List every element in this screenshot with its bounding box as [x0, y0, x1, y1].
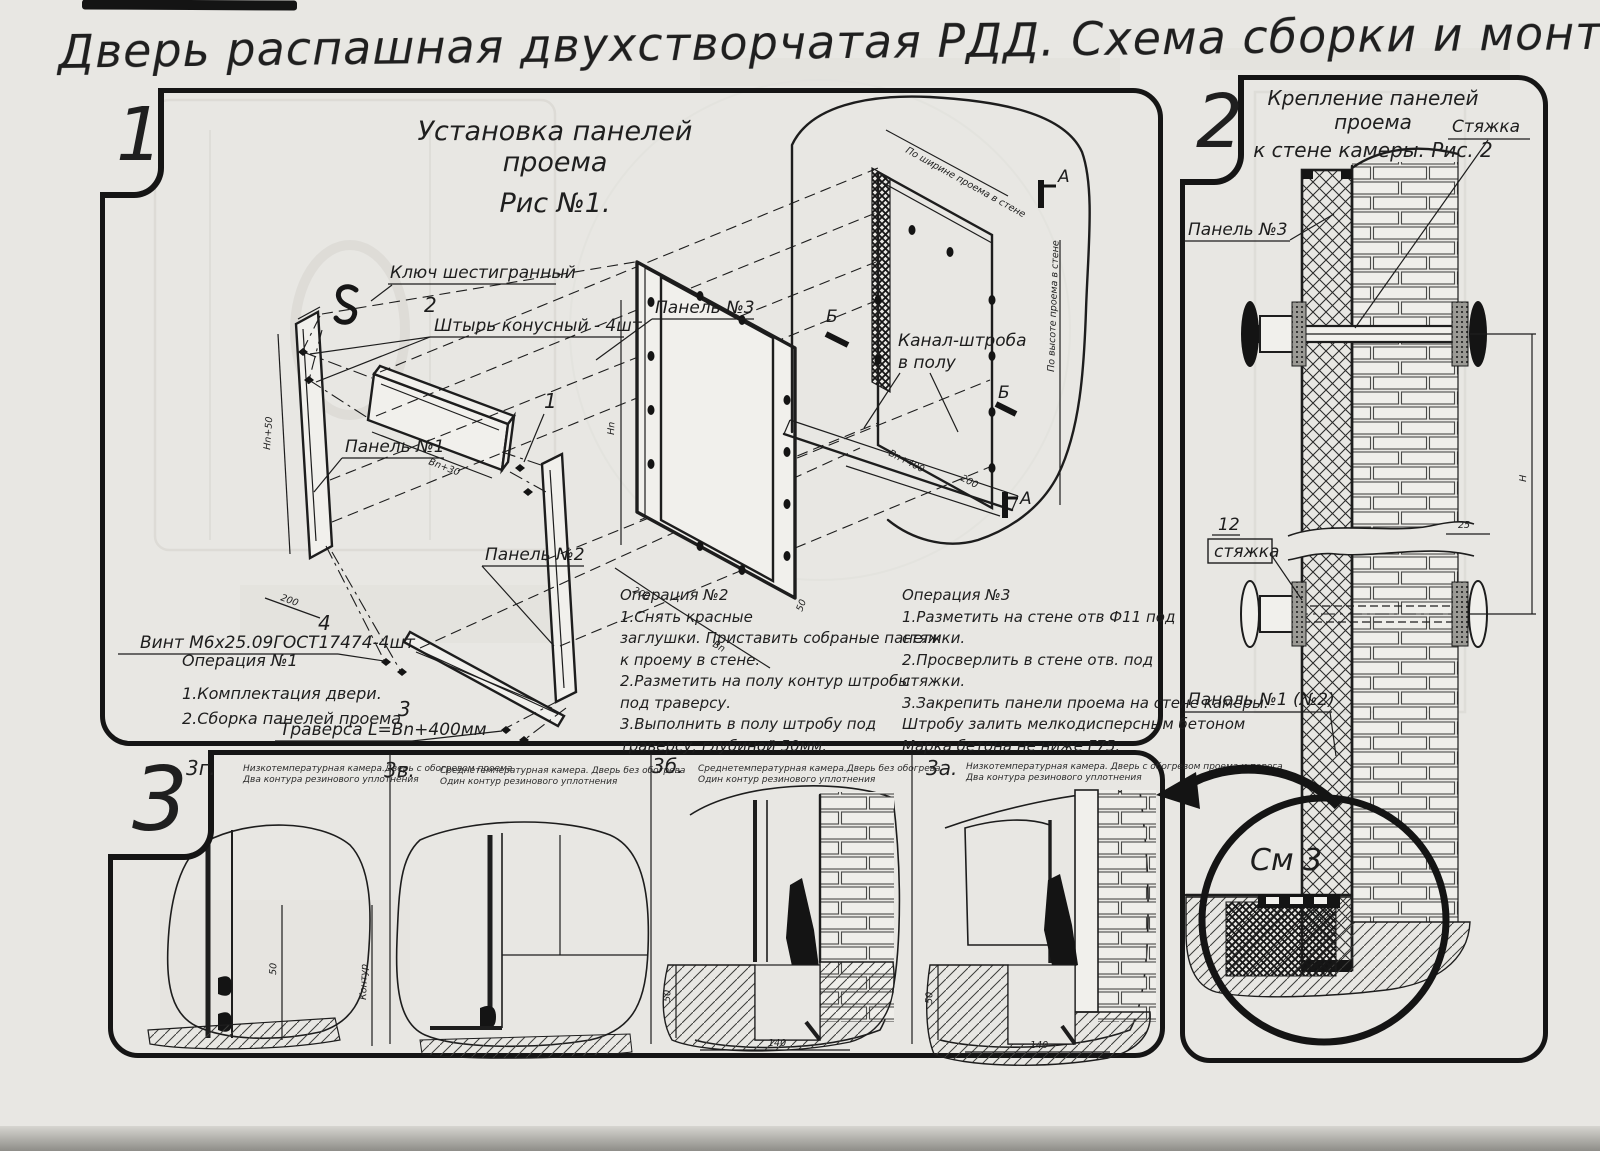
figure-1-heading-line2: Рис №1. — [385, 188, 725, 219]
figure-2-heading-line1: Крепление панелей проема — [1248, 86, 1498, 134]
figure-2-heading-line2: к стене камеры. Рис. 2 — [1248, 138, 1498, 162]
rubber-seal-icon — [218, 976, 232, 996]
dim-hn: Hn — [606, 422, 617, 436]
panel-1-badge: 1 — [116, 98, 163, 172]
figure-2-fixing-drawing: H 25 Стяжка Панель №3 12 стяжка — [1180, 75, 1538, 1058]
marker-b-left: Б — [826, 307, 838, 327]
operation-3-text: Операция №3 1.Разметить на стене отв Ф11… — [902, 585, 1269, 757]
cell-3b-label: 3б. — [652, 754, 683, 778]
label-pin-number: 2 — [424, 293, 437, 317]
section-3a-drawing: 50 140 — [924, 790, 1156, 1065]
section-3v-drawing — [397, 822, 649, 1058]
dim-opening-height: По высоте проема в стене — [1046, 240, 1062, 372]
dim-25: 25 — [1458, 520, 1470, 531]
dim-3b-50: 50 — [662, 990, 673, 1002]
blueprint-page: Дверь распашная двухстворчатая РДД. Схем… — [0, 0, 1600, 1151]
dim-3b-140: 140 — [768, 1038, 786, 1049]
operation-2-text: Операция №2 1.Снять красные заглушки. Пр… — [620, 585, 942, 757]
marker-a-bottom: А — [1019, 489, 1032, 509]
section-3b-drawing: 50 140 — [662, 786, 899, 1051]
dim-opening-width: По ширине проема в стене — [904, 145, 1028, 220]
panel-3-badge: 3 — [132, 756, 188, 844]
label-panel-1: Панель №1 — [345, 437, 445, 457]
label-tie-item-number: 12 — [1218, 515, 1240, 535]
cell-3g-label: 3г. — [186, 756, 216, 780]
label-conical-pin: Штырь конусный - 4шт — [434, 316, 643, 336]
cell-3v-label: 3в. — [384, 758, 415, 782]
dim-h: H — [1518, 475, 1529, 483]
dim-3a-140: 140 — [1030, 1040, 1048, 1051]
label-floor-channel-line1: Канал-штроба — [898, 331, 1027, 351]
scan-shadow-bottom — [0, 1126, 1600, 1151]
figure-3-sections-drawing: 50 Контур 50 — [108, 750, 1155, 1058]
cell-3a-caption: Низкотемпературная камера. Дверь с обогр… — [966, 762, 1283, 784]
label-floor-channel-line2: в полу — [898, 353, 957, 373]
dim-200c: 200 — [959, 473, 980, 491]
figure-1-heading-line1: Установка панелей проема — [385, 116, 725, 178]
marker-a-top: А — [1057, 167, 1070, 187]
insulated-panel-strip — [1302, 170, 1352, 972]
cell-3v-caption: Среднетемпературная камера. Дверь без об… — [440, 766, 685, 788]
figure-1-heading: Установка панелей проема Рис №1. — [385, 116, 725, 219]
dim-3a-50: 50 — [924, 992, 935, 1004]
label-item-1: 1 — [544, 389, 557, 413]
hex-key-icon — [336, 287, 356, 323]
label-panel-3: Панель №3 — [655, 298, 755, 318]
dim-hn50: Hn+50 — [262, 416, 275, 450]
cell-3a-label: 3а. — [926, 756, 957, 780]
figure-2-dimensions: H 25 — [1446, 334, 1536, 614]
dim-3g-50: 50 — [268, 963, 279, 975]
cell-3b-caption: Среднетемпературная камера.Дверь без обо… — [698, 764, 941, 786]
marker-b-right: Б — [998, 383, 1010, 403]
dim-200: 200 — [279, 592, 300, 609]
label-screw-number: 4 — [318, 611, 331, 635]
panel-2-badge: 2 — [1196, 85, 1243, 159]
label-hex-key: Ключ шестигранный — [390, 263, 576, 283]
figure-2-heading: Крепление панелей проема к стене камеры.… — [1248, 86, 1498, 162]
label-panel-3-fig2: Панель №3 — [1188, 220, 1288, 240]
label-panel-2: Панель №2 — [485, 545, 585, 565]
scan-smudge-top — [82, 0, 297, 11]
dim-3g-kontur: Контур — [358, 964, 370, 1000]
label-tie-boxed: стяжка — [1214, 542, 1279, 562]
brick-wall — [1352, 149, 1458, 970]
rubber-seal-icon — [480, 1006, 496, 1028]
operation-1-text: Операция №1 1.Комплектация двери. 2.Сбор… — [182, 648, 401, 731]
